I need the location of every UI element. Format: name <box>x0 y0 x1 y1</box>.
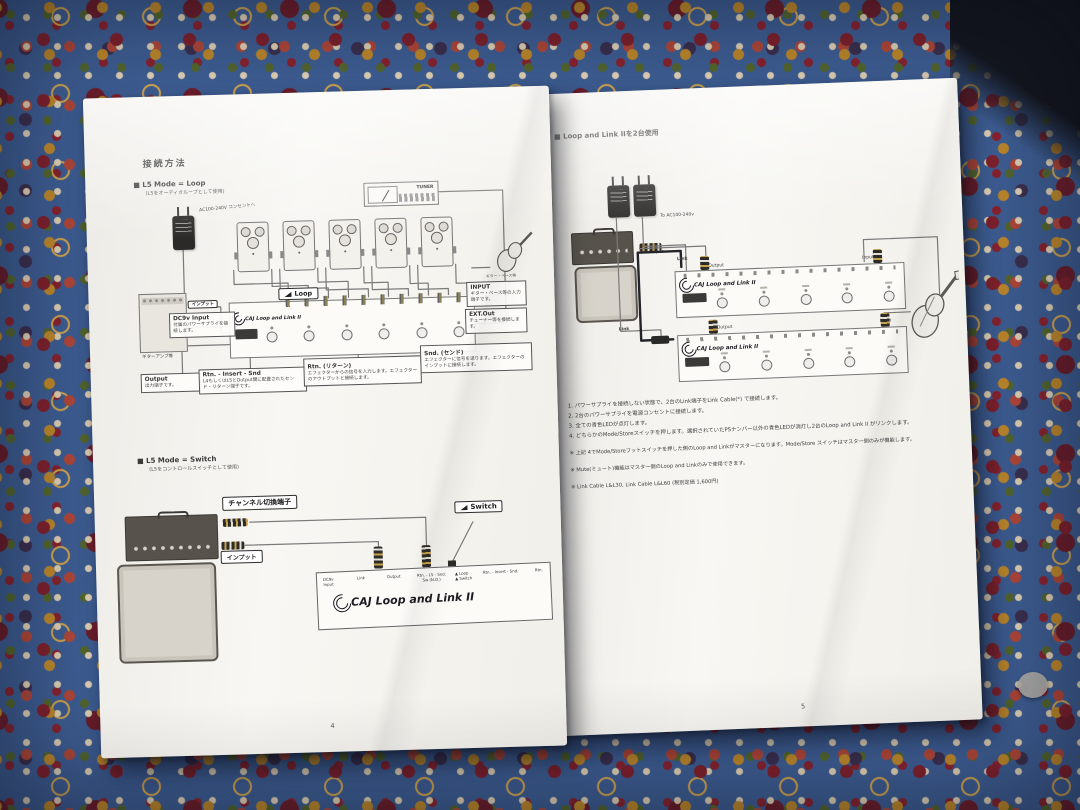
pedal-jack <box>268 251 272 258</box>
cable-path <box>418 265 449 296</box>
callout-snd: Snd. (センド) エフェクターに信号を送ります。エフェクターのインプットに接… <box>420 342 533 373</box>
callout-body: 付属のパワーサプライを接続します。 <box>173 322 231 336</box>
callout-output: Output 出力端子です。 <box>141 372 202 393</box>
led-indicator <box>848 351 851 354</box>
pedal-knob <box>332 224 342 234</box>
tuner-meter <box>367 186 397 204</box>
led-indicator <box>382 323 385 326</box>
manual-page-right: ■ Loop and Link IIを2台使用 To AC100-240v In… <box>533 78 982 736</box>
power-supply <box>172 216 195 251</box>
pedal-jack <box>406 248 410 255</box>
cable-path <box>326 267 369 298</box>
ac-outlet-label: To AC100-240v <box>660 212 694 218</box>
led-indicator <box>765 355 768 358</box>
jack-label-output: Output <box>387 574 401 580</box>
amp-cabinet <box>117 562 219 664</box>
footswitch <box>719 352 731 372</box>
led-indicator <box>762 291 765 294</box>
jack-label-rtn-l5-snd: Rtn. - L5 - Snd. Sw (N.O.) <box>417 571 446 582</box>
led-indicator <box>420 322 423 325</box>
pedal-led <box>252 253 254 255</box>
instruction-steps: 1. パワーサプライを接続しない状態で、2台のLink端子をLink Cable… <box>568 388 913 442</box>
page-number-left: 4 <box>330 722 334 730</box>
loop-mode-tag: Loop <box>278 287 318 300</box>
pedal-knob <box>438 221 448 231</box>
effect-pedal-2 <box>282 220 315 271</box>
pedal-icon <box>460 505 467 510</box>
cable-plug <box>374 546 384 568</box>
callout-body: チューナー等を接続します。 <box>469 317 523 331</box>
footswitch-button <box>842 292 853 303</box>
amp-cabinet <box>574 265 638 323</box>
effect-pedal-4 <box>374 218 407 269</box>
footswitch-button <box>379 328 390 339</box>
loop-and-link-unit-2: CAJ Loop and Link II <box>677 326 909 382</box>
plug-prong <box>622 176 624 185</box>
footswitch-button <box>266 331 277 342</box>
led-indicator <box>308 325 311 328</box>
pedal-knob <box>247 237 259 249</box>
callout-rtn-insert-snd: Rtn. - Insert - Snd L4もしくはL5とOutput間に配置さ… <box>198 366 307 394</box>
led-indicator <box>846 287 849 290</box>
amp-handle <box>157 511 188 519</box>
pedal-knob <box>385 233 397 245</box>
guitar-illustration <box>907 266 962 350</box>
callout-body: 出力端子です。 <box>145 383 197 391</box>
tuner-box: TUNER <box>363 181 439 207</box>
plug-prong <box>648 175 650 184</box>
unit1-output-label: Output <box>708 263 724 269</box>
channel-switch-tag-label: チャンネル切換端子 <box>228 497 291 509</box>
unit2-output-label: Output <box>717 325 733 331</box>
amp-label: ギターアンプ等 <box>142 353 173 360</box>
unit2-link-label: Link <box>619 327 630 332</box>
effect-pedal-1 <box>236 222 269 273</box>
note-link-cable: ※ Link Cable L&L30, Link Cable L&L60 (税別… <box>571 478 719 491</box>
guitar-label: ギター・ベース等 <box>486 273 516 280</box>
mute-display <box>685 357 709 367</box>
cable-path <box>318 267 349 298</box>
ac-outlet-label: AC100-240V コンセントへ <box>199 202 256 213</box>
effect-pedal-5 <box>420 216 453 267</box>
power-supply-label-print <box>610 189 626 202</box>
footswitch-button <box>761 359 772 370</box>
callout-body: エフェクターからの信号を入力します。エフェクターのアウトプットと接続します。 <box>308 368 418 383</box>
channel-switch-tag: チャンネル切換端子 <box>222 495 297 511</box>
pedal-jack <box>280 251 284 258</box>
unit1-link-label: Link <box>677 257 688 262</box>
manual-page-left: 接続方法 ■ L5 Mode = Loop (L5をオーディオループとして使用) <box>83 86 567 759</box>
footswitch-button <box>304 330 315 341</box>
caj-logo-text: CAJ Loop and Link II <box>351 590 475 609</box>
amp-knobs <box>131 543 212 552</box>
section-heading-two-units: ■ Loop and Link IIを2台使用 <box>554 128 659 142</box>
gray-object-on-carpet <box>1018 672 1048 698</box>
power-supply-label-print <box>636 188 652 201</box>
effect-pedal-3 <box>328 219 361 270</box>
footswitch <box>716 288 728 308</box>
footswitch-button <box>717 297 728 308</box>
callout-rtn: Rtn. (リターン) エフェクターからの信号を入力します。エフェクターのアウト… <box>303 355 422 387</box>
plug-prong <box>177 207 179 216</box>
caj-swirl-icon <box>334 594 351 611</box>
cable-path <box>245 542 378 551</box>
footswitch-button <box>803 358 814 369</box>
led-indicator <box>890 350 893 353</box>
cable-plug <box>873 249 883 263</box>
power-supply-2 <box>633 184 656 217</box>
caj-logo: CAJ Loop and Link II <box>235 314 301 323</box>
pedal-knob <box>301 225 311 235</box>
plug-prong <box>187 207 189 216</box>
page-number-right: 5 <box>801 702 805 710</box>
pedal-led <box>436 248 438 250</box>
pedal-jack <box>418 247 422 254</box>
loop-and-link-unit-1: CAJ Loop and Link II <box>674 262 906 318</box>
caj-swirl-icon <box>683 343 696 356</box>
page-title: 接続方法 <box>143 156 187 170</box>
pedal-led <box>298 252 300 254</box>
pedal-knob <box>424 222 434 232</box>
rear-panel: DC9v Input Link Output Rtn. - L5 - Snd. … <box>316 562 553 631</box>
cable-plug <box>221 541 244 550</box>
footswitch-button <box>844 356 855 367</box>
footswitch <box>758 286 770 306</box>
footswitch <box>266 326 277 342</box>
cable-path <box>364 266 389 297</box>
led-indicator <box>806 353 809 356</box>
amp-input-tag-label: インプット <box>192 301 215 308</box>
footswitch <box>760 350 772 370</box>
led-indicator <box>457 321 460 324</box>
pedal-knob <box>241 227 251 237</box>
cable-path <box>472 267 490 268</box>
cable-plug <box>880 313 890 327</box>
callout-dc9v-input: DC9v Input 付属のパワーサプライを接続します。 <box>169 311 236 338</box>
mute-display <box>682 293 706 303</box>
tuner-label: TUNER <box>416 185 433 190</box>
jack-label-rtn: Rtn. <box>535 567 543 572</box>
pedal-jack <box>360 249 364 256</box>
tuner-needle <box>382 190 389 202</box>
led-indicator <box>723 356 726 359</box>
pedal-led <box>390 249 392 251</box>
pedal-jack <box>234 252 238 259</box>
footswitch <box>304 325 315 341</box>
switch-mode-tag: Switch <box>454 500 503 513</box>
amp-input-tag: インプット <box>188 300 219 309</box>
section-subheading-switch: (L5をコントロールスイッチとして使用) <box>149 463 239 473</box>
mute-display <box>235 329 257 340</box>
footswitch-button <box>886 354 897 365</box>
footswitch <box>341 324 352 340</box>
cable-plug <box>421 545 431 567</box>
loop-tag-label: Loop <box>294 289 312 297</box>
callout-ext-out: EXT.Out チューナー等を接続します。 <box>465 307 528 334</box>
pedal-knob <box>255 227 265 237</box>
caj-swirl-icon <box>680 279 693 292</box>
photo-scene: ■ Loop and Link IIを2台使用 To AC100-240v In… <box>0 0 1080 810</box>
footswitch <box>378 323 389 339</box>
caj-logo-text: CAJ Loop and Link II <box>245 314 301 322</box>
tuner-buttons <box>399 193 435 202</box>
cable-plug <box>223 518 248 527</box>
cable-path <box>250 517 427 550</box>
power-supply-label-print <box>175 220 191 232</box>
footswitch <box>883 281 895 301</box>
pedal-icon <box>284 291 291 296</box>
pedal-knob <box>431 232 443 244</box>
plug-prong <box>612 177 614 186</box>
pedal-knob <box>293 235 305 247</box>
footswitch <box>841 283 853 303</box>
pedal-knob <box>339 234 351 246</box>
pedal-knob <box>287 226 297 236</box>
link-cable-connector <box>651 336 669 345</box>
pedal-jack <box>372 249 376 256</box>
cable-plug <box>639 243 661 252</box>
cable-plug <box>708 320 718 334</box>
footswitch <box>844 347 856 367</box>
callout-body: エフェクターに信号を送ります。エフェクターのインプットに接続します。 <box>424 355 528 370</box>
cable-path <box>372 266 409 297</box>
led-indicator <box>887 286 890 289</box>
amp-handle <box>593 228 615 236</box>
guitar-illustration <box>495 226 536 279</box>
led-indicator <box>804 289 807 292</box>
callout-input: INPUT ギター・ベース等の入力端子です。 <box>466 280 527 307</box>
footswitch <box>802 349 814 369</box>
pedal-knob <box>346 224 356 234</box>
amp-head <box>125 514 219 562</box>
led-indicator <box>345 324 348 327</box>
cable-plug <box>700 256 710 270</box>
amp-control-panel <box>141 297 183 305</box>
section-subheading-loop: (L5をオーディオループとして使用) <box>145 188 224 197</box>
switch-leader-line <box>451 522 474 563</box>
footswitch-button <box>416 327 427 338</box>
callout-body: L4もしくはL5とOutput間に配置されたセンド・リターン端子です。 <box>203 377 303 392</box>
footswitch-button <box>719 361 730 372</box>
input-tag-label: インプット <box>227 552 257 562</box>
input-tag: インプット <box>221 550 263 564</box>
pedal-jack <box>452 246 456 253</box>
footswitch-button <box>453 326 464 337</box>
callout-body: ギター・ベース等の入力端子です。 <box>470 290 522 304</box>
jack-label-loop-switch: ▲ Loop ▲ Switch <box>455 570 473 581</box>
pedal-jack <box>326 250 330 257</box>
pedal-jack <box>314 250 318 257</box>
pedal-knob <box>378 223 388 233</box>
footswitch <box>453 321 464 337</box>
footswitch-button <box>883 290 894 301</box>
jack-label-dc9v: DC9v Input <box>323 577 334 588</box>
switch-tag-label: Switch <box>470 502 497 511</box>
pedal-led <box>344 250 346 252</box>
corner-shadow <box>950 0 1080 210</box>
jack-label-link: Link <box>357 575 365 580</box>
footswitch-button <box>341 329 352 340</box>
cable-path <box>410 265 429 295</box>
footswitch-button <box>800 294 811 305</box>
power-supply-1 <box>607 185 630 218</box>
footswitch <box>800 285 812 305</box>
plug-prong <box>638 176 640 185</box>
footswitch-button <box>758 295 769 306</box>
caj-logo: CAJ Loop and Link II <box>336 590 475 609</box>
note-mute: ※ Mute(ミュート)機能はマスター側のLoop and Linkのみで使用で… <box>570 459 748 473</box>
amp-knobs <box>578 247 628 256</box>
led-indicator <box>270 326 273 329</box>
led-indicator <box>720 292 723 295</box>
footswitch <box>416 322 427 338</box>
footswitch <box>886 345 898 365</box>
footswitch-row <box>266 321 464 343</box>
pedal-knob <box>392 223 402 233</box>
jack-label-rtn-insert-snd: Rtn. - Insert - Snd. <box>483 568 519 575</box>
amp-head <box>571 231 634 265</box>
